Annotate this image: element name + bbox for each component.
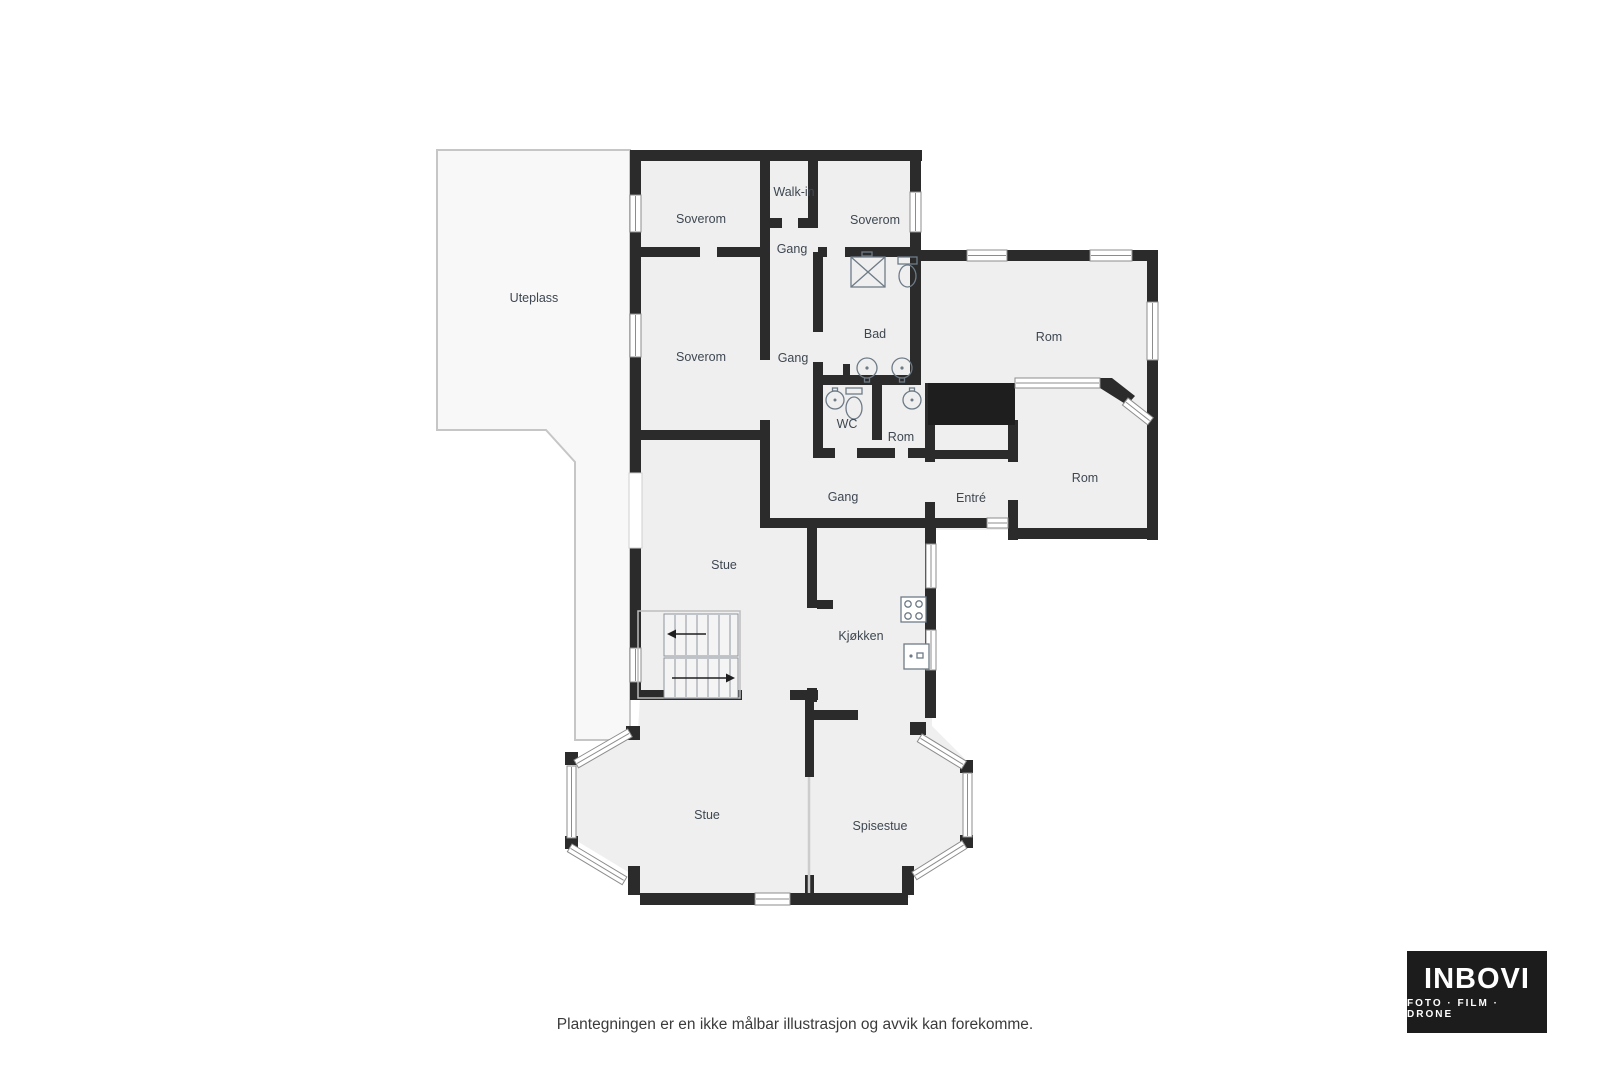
room-label-bad: Bad (864, 327, 886, 341)
floor-plan-page: Uteplass Soverom Walk-in Soverom Gang So… (0, 0, 1600, 1067)
window (1015, 378, 1100, 388)
void-area (928, 383, 1015, 425)
room-label-soverom-2: Soverom (850, 213, 900, 227)
kitchen-sink-symbol (904, 644, 929, 669)
patio-door (629, 473, 642, 548)
window (963, 773, 972, 837)
window (987, 518, 1008, 528)
room-label-stue-upper: Stue (711, 558, 737, 572)
window (910, 192, 921, 232)
floor-plan: Uteplass Soverom Walk-in Soverom Gang So… (0, 0, 1600, 1067)
window (630, 648, 641, 682)
room-label-rom-upper: Rom (1036, 330, 1062, 344)
window (567, 766, 576, 838)
window (630, 195, 641, 232)
disclaimer-text: Plantegningen er en ikke målbar illustra… (557, 1016, 1033, 1034)
room-label-wc: WC (837, 417, 858, 431)
room-label-soverom-1: Soverom (676, 212, 726, 226)
room-label-rom-lower: Rom (1072, 471, 1098, 485)
window (1147, 302, 1158, 360)
logo-tagline: FOTO · FILM · DRONE (1407, 998, 1547, 1020)
room-label-rom-small: Rom (888, 430, 914, 444)
window (1090, 250, 1132, 261)
inbovi-logo: INBOVI FOTO · FILM · DRONE (1407, 951, 1547, 1033)
room-label-entre: Entré (956, 491, 986, 505)
room-label-kjokken: Kjøkken (838, 629, 883, 643)
logo-name: INBOVI (1424, 965, 1530, 994)
room-label-walk-in: Walk-in (773, 185, 814, 199)
window (630, 314, 641, 357)
uteplass-outline (437, 150, 630, 740)
room-label-gang-lower: Gang (828, 490, 859, 504)
window (755, 893, 790, 905)
room-label-stue-lower: Stue (694, 808, 720, 822)
room-label-gang-mid: Gang (778, 351, 809, 365)
room-label-uteplass: Uteplass (510, 291, 559, 305)
room-label-gang-upper: Gang (777, 242, 808, 256)
room-label-spisestue: Spisestue (853, 819, 908, 833)
window (926, 544, 936, 588)
stove-symbol (901, 597, 926, 622)
window (967, 250, 1007, 261)
room-label-soverom-3: Soverom (676, 350, 726, 364)
